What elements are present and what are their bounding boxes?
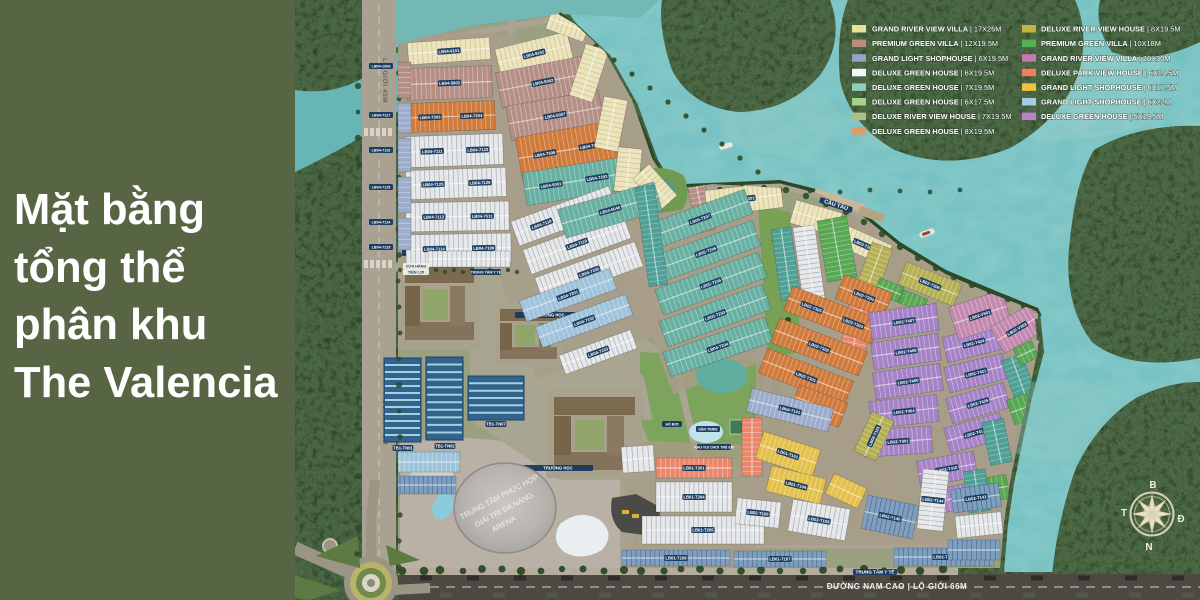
svg-text:tổng thể: tổng thể (14, 244, 186, 292)
svg-text:CỨA HÀNG: CỨA HÀNG (406, 264, 427, 269)
svg-text:GRAND RIVER VIEW VILLA | 17X26: GRAND RIVER VIEW VILLA | 17X26M (872, 25, 1001, 34)
svg-text:DELUXE GREEN HOUSE | 8X19.5M: DELUXE GREEN HOUSE | 8X19.5M (872, 127, 994, 136)
svg-text:LB04-7304: LB04-7304 (461, 113, 483, 119)
svg-text:DELUXE GREEN HOUSE | 5X19.5M: DELUXE GREEN HOUSE | 5X19.5M (1041, 112, 1163, 121)
svg-text:LB01-T107: LB01-T107 (769, 557, 791, 562)
svg-text:LB01-T201: LB01-T201 (683, 466, 705, 471)
svg-text:PREMIUM GREEN VILLA | 12X19.5M: PREMIUM GREEN VILLA | 12X19.5M (872, 39, 998, 48)
svg-text:LB04-7115: LB04-7115 (372, 246, 391, 250)
svg-text:The Valencia: The Valencia (14, 359, 278, 407)
svg-text:LB04-5003: LB04-5003 (439, 80, 461, 86)
svg-text:LB04-7114: LB04-7114 (372, 221, 392, 225)
svg-text:LB04-7123: LB04-7123 (467, 147, 489, 153)
svg-text:KHU VUI CHƠI TRẺ EM: KHU VUI CHƠI TRẺ EM (694, 445, 734, 450)
svg-text:DELUXE PARK VIEW HOUSE | 6X19.: DELUXE PARK VIEW HOUSE | 6X19.5M (1041, 68, 1178, 77)
svg-text:TB1-TN01: TB1-TN01 (393, 446, 413, 451)
svg-text:TRUNG TÂM Y TẾ: TRUNG TÂM Y TẾ (856, 569, 895, 575)
svg-text:DELUXE RIVER VIEW HOUSE | 8X19: DELUXE RIVER VIEW HOUSE | 8X19.5M (1041, 25, 1181, 34)
svg-text:N: N (1145, 542, 1152, 553)
svg-text:T: T (1121, 508, 1127, 519)
svg-text:TB1-TN02: TB1-TN02 (435, 444, 455, 449)
svg-text:SÂN TENIS: SÂN TENIS (698, 427, 718, 432)
svg-text:LB04-7125: LB04-7125 (422, 182, 444, 188)
svg-text:Mặt bằng: Mặt bằng (14, 184, 205, 234)
svg-text:B: B (1149, 480, 1156, 491)
svg-text:DELUXE GREEN HOUSE | 6X17.5M: DELUXE GREEN HOUSE | 6X17.5M (872, 98, 994, 107)
svg-text:DELUXE GREEN HOUSE | 6X19.5M: DELUXE GREEN HOUSE | 6X19.5M (872, 68, 994, 77)
svg-text:LB04-7112: LB04-7112 (423, 214, 444, 219)
svg-text:LB04-1006: LB04-1006 (372, 65, 391, 69)
svg-text:LB04-7511: LB04-7511 (472, 213, 493, 218)
svg-text:Đ: Đ (1177, 514, 1184, 525)
svg-text:TRƯỜNG HỌC: TRƯỜNG HỌC (543, 466, 572, 471)
svg-text:LB04-7116: LB04-7116 (372, 149, 391, 153)
svg-text:LB01-T205: LB01-T205 (692, 528, 714, 533)
svg-text:TIỆN LỢI: TIỆN LỢI (408, 270, 424, 275)
svg-text:GRAND LIGHT SHOPHOUSE | 6X19.5: GRAND LIGHT SHOPHOUSE | 6X19.5M (872, 54, 1008, 63)
svg-text:GRAND LIGHT SHOPHOUSE | 6X17.5: GRAND LIGHT SHOPHOUSE | 6X17.5M (1041, 83, 1177, 92)
svg-text:DELUXE GREEN HOUSE | 7X19.5M: DELUXE GREEN HOUSE | 7X19.5M (872, 83, 994, 92)
svg-text:LB04-7129: LB04-7129 (469, 180, 491, 186)
svg-text:DELUXE RIVER VIEW HOUSE | 7X19: DELUXE RIVER VIEW HOUSE | 7X19.5M (872, 112, 1012, 121)
svg-text:LB04-7117: LB04-7117 (372, 114, 391, 118)
svg-text:phân khu: phân khu (14, 301, 207, 349)
svg-text:GRAND LIGHT SHOPHOUSE | 6X22M: GRAND LIGHT SHOPHOUSE | 6X22M (1041, 98, 1171, 107)
svg-text:TRUNG TÂM Y TẾ: TRUNG TÂM Y TẾ (471, 270, 502, 275)
svg-text:TB1-TN07: TB1-TN07 (486, 422, 506, 427)
svg-text:LB04-7303: LB04-7303 (419, 114, 441, 120)
svg-text:LB01-T106: LB01-T106 (665, 556, 687, 561)
svg-text:LB04-7199: LB04-7199 (473, 245, 495, 250)
svg-text:GRAND RIVER VIEW VILLA | 20X30: GRAND RIVER VIEW VILLA | 20X30M (1041, 54, 1170, 63)
svg-text:LB04-7115: LB04-7115 (372, 186, 391, 190)
svg-text:LB04-7111: LB04-7111 (422, 148, 443, 154)
svg-text:LB01-T204: LB01-T204 (683, 495, 705, 500)
svg-text:PREMIUM GREEN VILLA | 10X18M: PREMIUM GREEN VILLA | 10X18M (1041, 39, 1161, 48)
svg-text:ĐƯỜNG NAM CAO | LỘ GIỚI 66M: ĐƯỜNG NAM CAO | LỘ GIỚI 66M (827, 582, 967, 591)
svg-text:HỒ BƠI: HỒ BƠI (665, 422, 678, 427)
